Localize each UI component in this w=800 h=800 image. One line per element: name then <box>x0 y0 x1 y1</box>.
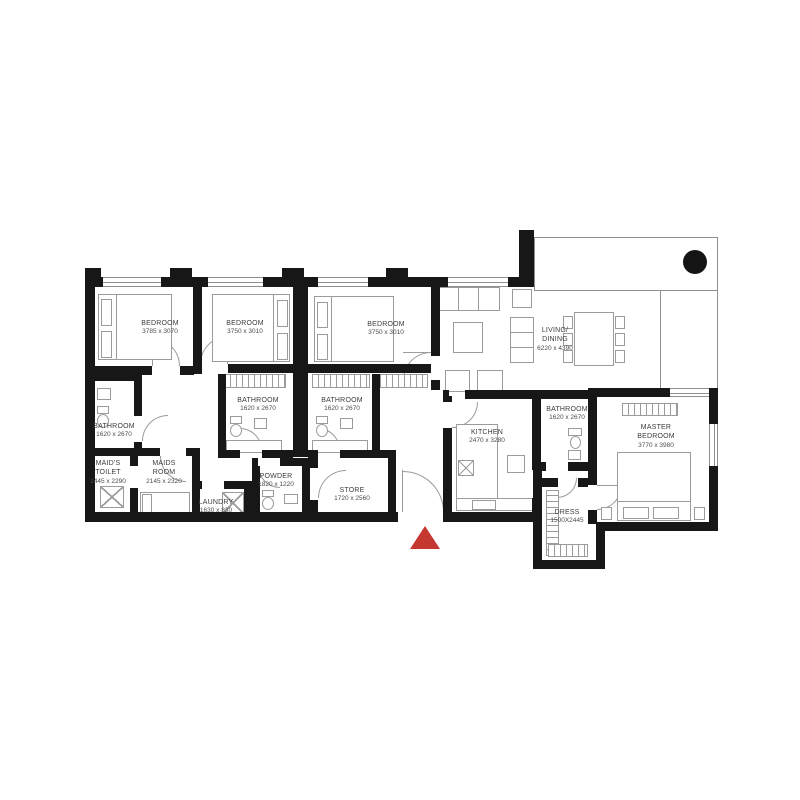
door-arc <box>318 470 346 498</box>
wall <box>532 498 541 512</box>
wall <box>431 380 440 390</box>
wall <box>244 481 252 521</box>
pillow-icon <box>623 507 649 519</box>
chair-icon <box>615 316 625 329</box>
window <box>103 277 161 287</box>
sofa-line <box>458 288 459 310</box>
wall <box>170 268 192 278</box>
wall <box>388 452 396 512</box>
toilet-icon <box>262 497 274 510</box>
door-arc <box>557 478 577 498</box>
sink-icon <box>97 388 111 400</box>
bed-line <box>331 297 332 361</box>
wall <box>534 390 597 399</box>
toilet-icon <box>97 406 109 414</box>
wall <box>180 366 194 375</box>
wardrobe-icon <box>374 374 428 388</box>
wall <box>252 458 258 466</box>
room-name: MASTER BEDROOM <box>637 424 675 442</box>
sink-icon <box>284 494 298 504</box>
sink-icon <box>568 450 581 460</box>
wall <box>578 478 588 487</box>
wall <box>293 286 308 457</box>
door-arc <box>142 415 168 441</box>
side-table-icon <box>694 507 705 520</box>
wall <box>465 390 534 399</box>
wall <box>532 390 541 470</box>
wall <box>252 466 260 512</box>
floor-plan: BEDROOM 3785 x 3070 BEDROOM 3750 x 3010 … <box>0 0 800 800</box>
pillow-icon <box>653 507 679 519</box>
shower-icon <box>100 486 124 508</box>
room-name: MAID'S TOILET <box>95 460 121 478</box>
toilet-icon <box>568 428 582 436</box>
toilet-icon <box>570 436 581 449</box>
room-dims: 1620 x 2670 <box>324 405 360 413</box>
wardrobe-icon <box>312 374 370 388</box>
pillow-icon <box>317 334 328 360</box>
wall <box>568 462 597 471</box>
wall <box>443 396 452 402</box>
chair-icon <box>563 333 573 346</box>
room-label-bathroom-3: BATHROOM 1620 x 2670 <box>310 394 374 416</box>
side-table-icon <box>601 507 612 520</box>
column-marker <box>683 250 707 274</box>
pillow-icon <box>317 302 328 328</box>
wall <box>431 286 440 356</box>
wardrobe-icon <box>224 374 286 388</box>
pillow-icon <box>277 300 288 327</box>
toilet-icon <box>316 424 328 437</box>
stove-icon <box>472 500 496 510</box>
room-dims: 1620 x 2670 <box>240 405 276 413</box>
wall <box>307 364 431 373</box>
sofa-line <box>478 288 479 310</box>
wall <box>192 481 202 489</box>
wall <box>533 470 542 569</box>
armchair-icon <box>445 370 470 392</box>
wall <box>596 527 605 569</box>
room-label-bathroom-2: BATHROOM 1620 x 2670 <box>226 394 290 416</box>
bed-line <box>116 295 117 359</box>
fridge-icon <box>507 455 525 473</box>
wall <box>302 458 310 512</box>
wall <box>228 364 294 373</box>
chair-icon <box>615 350 625 363</box>
wall <box>596 522 718 531</box>
wall <box>533 560 605 569</box>
room-name: BATHROOM <box>321 397 363 406</box>
wall <box>542 478 558 487</box>
wall <box>519 230 534 287</box>
side-table-icon <box>512 289 532 308</box>
toilet-icon <box>230 424 242 437</box>
sink-icon <box>254 418 267 429</box>
wall <box>193 286 202 374</box>
pillow-icon <box>101 299 112 326</box>
wall <box>310 500 318 512</box>
console-line <box>511 332 533 333</box>
window <box>709 424 718 466</box>
pillow-icon <box>277 333 288 360</box>
wall <box>218 374 226 458</box>
toilet-icon <box>262 490 274 497</box>
washer-icon <box>222 492 244 514</box>
pillow-icon <box>101 331 112 358</box>
window <box>448 277 508 287</box>
toilet-icon <box>316 416 328 424</box>
room-dims: 3770 x 3980 <box>638 442 674 450</box>
sofa-icon <box>438 287 500 311</box>
bed-line <box>618 501 690 502</box>
door-arc <box>258 466 280 488</box>
wardrobe-icon <box>548 544 588 557</box>
tv-console-icon <box>510 317 534 363</box>
window <box>670 388 709 397</box>
wall <box>443 512 540 522</box>
toilet-icon <box>97 414 109 428</box>
chair-icon <box>563 350 573 363</box>
room-name: BATHROOM <box>546 406 588 415</box>
wall <box>130 488 138 514</box>
coffee-table-icon <box>453 322 483 353</box>
wardrobe-icon <box>622 403 678 416</box>
wall <box>218 450 240 458</box>
wall <box>85 277 95 521</box>
room-name: BATHROOM <box>237 397 279 406</box>
wall <box>130 456 138 466</box>
toilet-icon <box>230 416 242 424</box>
wall <box>588 388 670 397</box>
door-arc <box>160 456 186 482</box>
room-dims: 1620 x 2670 <box>96 431 132 439</box>
wall <box>386 268 408 278</box>
window <box>208 277 263 287</box>
room-dims: 1620 x 2670 <box>549 414 585 422</box>
wall <box>588 510 597 524</box>
sink-icon <box>458 460 474 476</box>
wall <box>310 452 318 468</box>
sink-icon <box>340 418 353 429</box>
door-arc <box>403 471 444 512</box>
balcony-outline <box>660 290 718 389</box>
dining-table-icon <box>574 312 614 366</box>
wall <box>134 372 142 416</box>
chair-icon <box>615 333 625 346</box>
room-dims: 1445 x 2290 <box>90 478 126 486</box>
bed-line <box>273 295 274 361</box>
console-line <box>511 347 533 348</box>
wall <box>443 428 452 512</box>
wall <box>282 268 304 278</box>
wall <box>193 364 200 373</box>
chair-icon <box>563 316 573 329</box>
window <box>318 277 368 287</box>
entrance-marker-icon <box>410 526 440 549</box>
wall <box>262 450 293 458</box>
room-label-master-bedroom: MASTER BEDROOM 3770 x 3980 <box>620 418 692 456</box>
wall <box>85 448 160 456</box>
wall <box>372 374 380 458</box>
